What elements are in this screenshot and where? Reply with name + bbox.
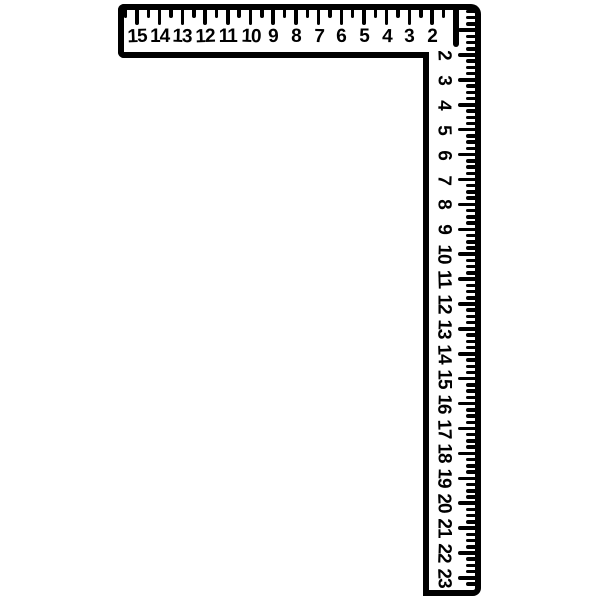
h-tick <box>294 10 298 25</box>
h-tick <box>328 10 332 18</box>
h-tick <box>362 10 366 25</box>
v-tick <box>466 116 475 120</box>
v-number: 3 <box>435 75 454 85</box>
v-tick <box>466 284 475 288</box>
h-number: 15 <box>127 27 147 47</box>
h-tick <box>396 10 400 18</box>
v-tick <box>458 302 475 306</box>
h-tick <box>306 10 310 18</box>
v-tick <box>458 402 475 406</box>
h-tick <box>442 10 446 18</box>
v-tick <box>458 28 475 32</box>
v-tick <box>466 383 475 387</box>
v-tick <box>466 10 475 14</box>
h-number: 7 <box>313 27 323 46</box>
v-number: 17 <box>434 419 454 439</box>
v-tick <box>466 72 475 76</box>
v-tick <box>458 526 475 530</box>
v-tick <box>466 389 475 393</box>
framing-square-figure: 15141312111098765432 2345678910111213141… <box>0 0 600 600</box>
h-number: 2 <box>427 27 437 46</box>
v-tick <box>466 234 475 238</box>
v-tick <box>466 159 475 163</box>
h-tick <box>147 10 151 18</box>
h-tick <box>226 10 230 25</box>
v-tick <box>466 91 475 95</box>
h-number: 3 <box>404 27 414 46</box>
v-tick <box>466 570 475 574</box>
v-number: 11 <box>434 270 454 289</box>
v-tick <box>466 340 475 344</box>
v-tick <box>466 458 475 462</box>
v-tick <box>458 153 475 157</box>
h-tick <box>340 10 344 25</box>
v-tick <box>466 172 475 176</box>
v-tick <box>458 352 475 356</box>
v-tick <box>466 271 475 275</box>
h-tick <box>430 10 434 25</box>
h-number: 9 <box>268 27 278 46</box>
v-tick <box>466 333 475 337</box>
v-tick <box>458 128 475 132</box>
v-tick <box>466 221 475 225</box>
v-tick <box>458 327 475 331</box>
h-tick <box>317 10 321 25</box>
v-tick <box>466 470 475 474</box>
h-tick <box>237 10 241 18</box>
v-tick <box>466 445 475 449</box>
h-tick <box>181 10 185 25</box>
v-tick <box>466 557 475 561</box>
v-number: 21 <box>435 519 454 538</box>
v-tick <box>458 277 475 281</box>
v-tick <box>466 582 475 586</box>
v-number: 9 <box>435 225 454 235</box>
v-number: 7 <box>434 174 453 184</box>
v-tick <box>466 84 475 88</box>
v-tick <box>466 97 475 101</box>
v-tick <box>458 103 475 107</box>
v-tick <box>466 315 475 319</box>
v-number: 15 <box>435 369 454 388</box>
h-tick <box>203 10 207 25</box>
v-number: 14 <box>434 344 454 364</box>
v-tick <box>466 408 475 412</box>
v-tick <box>458 228 475 232</box>
v-tick <box>466 464 475 468</box>
v-tick <box>466 240 475 244</box>
v-number: 10 <box>434 244 454 264</box>
h-tick <box>271 10 275 25</box>
v-tick <box>466 290 475 294</box>
v-tick <box>466 47 475 51</box>
v-tick <box>458 203 475 207</box>
v-tick <box>466 358 475 362</box>
h-number: 4 <box>382 27 392 46</box>
v-tick <box>458 78 475 82</box>
v-tick <box>466 296 475 300</box>
h-tick <box>419 10 423 18</box>
v-tick <box>466 190 475 194</box>
v-tick <box>466 41 475 45</box>
v-tick <box>466 421 475 425</box>
v-tick <box>466 140 475 144</box>
vertical-blade-left-edge <box>423 52 429 596</box>
v-tick <box>458 53 475 57</box>
v-tick <box>466 246 475 250</box>
v-tick <box>458 252 475 256</box>
h-tick <box>124 10 128 18</box>
h-number: 10 <box>241 27 261 47</box>
v-tick <box>458 501 475 505</box>
v-tick <box>466 265 475 269</box>
v-number: 5 <box>434 125 453 135</box>
h-tick <box>260 10 264 18</box>
v-tick <box>466 184 475 188</box>
v-tick <box>466 122 475 126</box>
h-tick <box>158 10 162 25</box>
v-tick <box>466 59 475 63</box>
v-tick <box>466 365 475 369</box>
v-number: 4 <box>434 100 453 110</box>
v-tick <box>466 16 475 20</box>
h-tick <box>283 10 287 18</box>
v-tick <box>466 483 475 487</box>
v-number: 16 <box>434 394 454 414</box>
h-number: 5 <box>359 27 369 46</box>
v-number: 23 <box>434 568 454 588</box>
v-tick <box>466 196 475 200</box>
v-number: 20 <box>434 493 454 513</box>
v-tick <box>466 439 475 443</box>
v-number: 22 <box>434 543 454 563</box>
v-number: 18 <box>435 444 454 463</box>
v-tick <box>466 346 475 350</box>
v-tick <box>466 508 475 512</box>
h-tick <box>215 10 219 18</box>
v-tick <box>466 109 475 113</box>
v-number: 8 <box>434 199 453 209</box>
v-tick <box>466 489 475 493</box>
h-number: 13 <box>172 27 192 47</box>
v-tick <box>466 215 475 219</box>
v-tick <box>466 22 475 26</box>
v-tick <box>458 477 475 481</box>
v-number: 2 <box>434 50 453 60</box>
v-tick <box>466 147 475 151</box>
v-tick <box>466 539 475 543</box>
v-tick <box>466 545 475 549</box>
v-tick <box>466 35 475 39</box>
v-tick <box>458 452 475 456</box>
v-tick <box>466 308 475 312</box>
h-tick <box>408 10 412 25</box>
h-tick <box>351 10 355 18</box>
v-tick <box>466 259 475 263</box>
v-tick <box>458 551 475 555</box>
h-number: 6 <box>336 27 346 46</box>
v-tick <box>466 514 475 518</box>
v-number: 6 <box>435 150 454 160</box>
h-number: 12 <box>195 27 215 47</box>
h-number: 8 <box>291 27 301 46</box>
v-tick <box>466 414 475 418</box>
v-tick <box>466 321 475 325</box>
v-tick <box>458 576 475 580</box>
v-tick <box>466 134 475 138</box>
h-number: 14 <box>150 27 169 46</box>
h-tick <box>135 10 139 25</box>
v-tick <box>466 209 475 213</box>
v-number: 12 <box>435 294 454 313</box>
v-tick <box>466 66 475 70</box>
v-tick <box>466 165 475 169</box>
h-number: 11 <box>219 27 237 46</box>
v-tick <box>458 427 475 431</box>
v-tick <box>466 520 475 524</box>
v-tick <box>466 396 475 400</box>
v-tick <box>466 564 475 568</box>
h-tick <box>385 10 389 25</box>
v-tick <box>466 433 475 437</box>
v-tick <box>466 533 475 537</box>
h-tick <box>169 10 173 18</box>
v-number: 19 <box>434 468 454 488</box>
h-tick <box>374 10 378 18</box>
v-tick <box>466 495 475 499</box>
v-tick <box>466 371 475 375</box>
h-tick <box>249 10 253 25</box>
v-tick <box>458 377 475 381</box>
v-tick <box>458 178 475 182</box>
v-number: 13 <box>434 319 454 339</box>
h-tick <box>192 10 196 18</box>
